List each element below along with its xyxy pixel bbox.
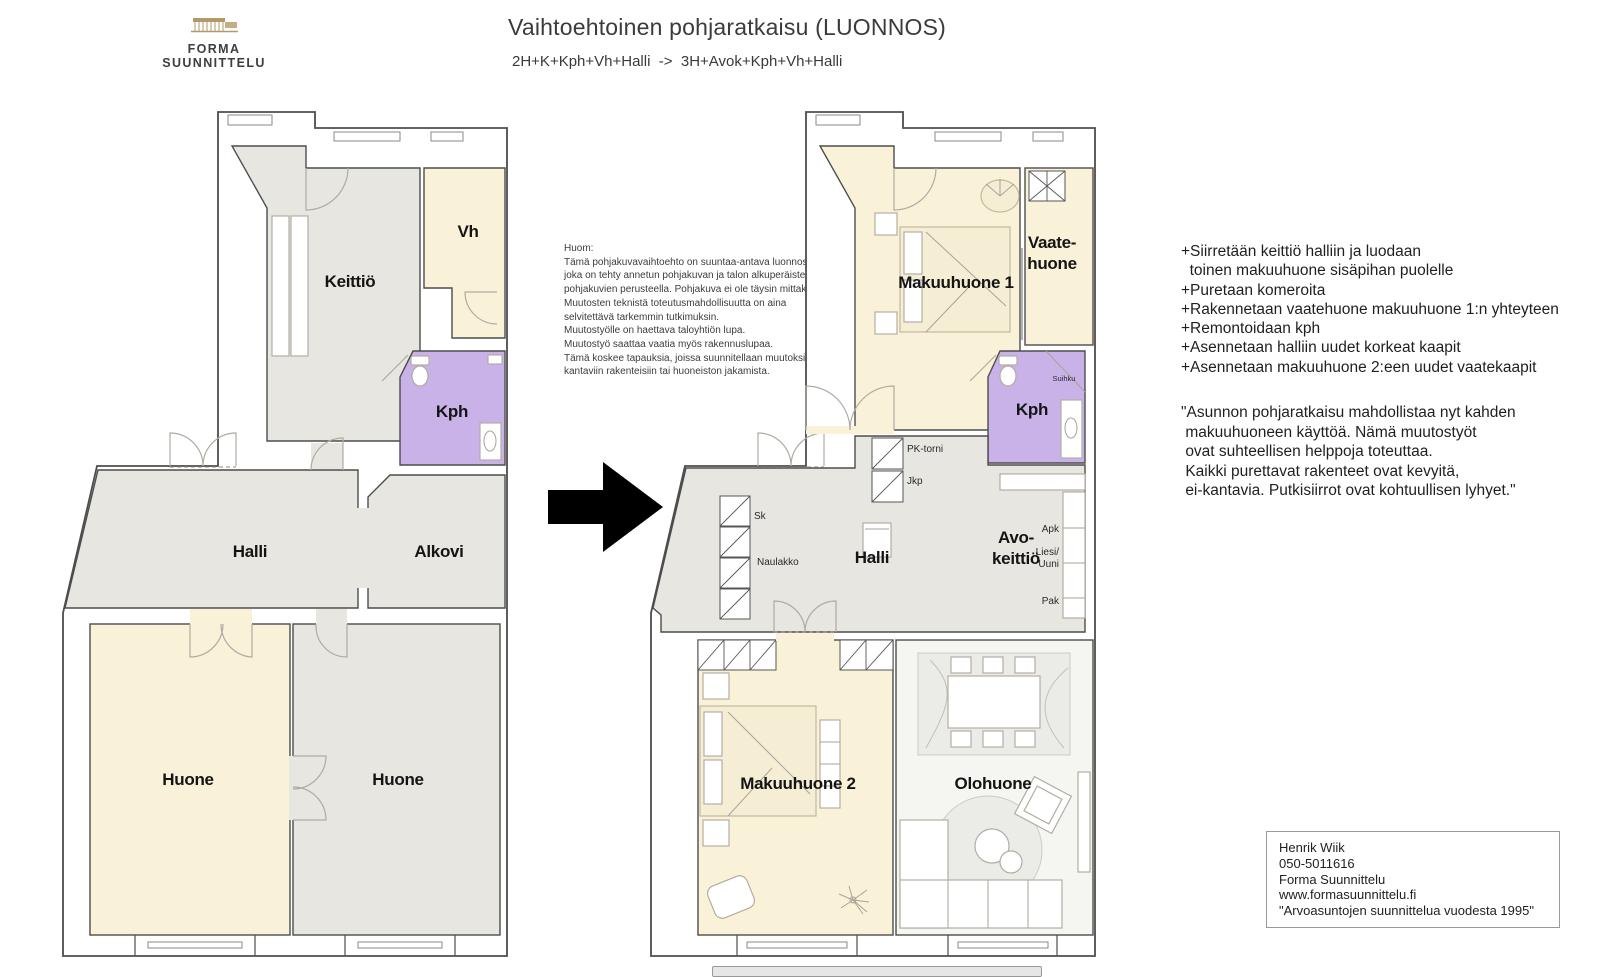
room-label-makuuhuone2: Makuuhuone 2 xyxy=(740,774,855,793)
room-label-olohuone: Olohuone xyxy=(955,774,1032,793)
label-pak: Pak xyxy=(1042,596,1060,607)
change-list: +Siirretään keittiö halliin ja luodaan t… xyxy=(1181,242,1559,377)
room-label-avokeittio-line2: keittiö xyxy=(992,549,1040,568)
room-label-keittio: Keittiö xyxy=(325,272,376,291)
label-naulakko: Naulakko xyxy=(757,557,799,568)
room-label-huone-right: Huone xyxy=(372,770,423,789)
transformation-arrow-icon xyxy=(548,462,663,557)
logo-text: FORMA SUUNNITTELU xyxy=(143,42,285,70)
label-jkp: Jkp xyxy=(907,476,923,487)
floor-plan-before: Keittiö Vh Kph Halli Alkovi Huone Huone xyxy=(60,108,520,963)
logo-building-icon xyxy=(184,14,244,36)
label-sk: Sk xyxy=(754,511,767,522)
company-logo: FORMA SUUNNITTELU xyxy=(143,14,285,70)
room-label-avokeittio-line1: Avo- xyxy=(998,528,1034,547)
room-label-huone-left: Huone xyxy=(162,770,213,789)
floor-plan-after: Makuuhuone 1 Vaate- huone Kph Suihku PK-… xyxy=(648,108,1108,963)
room-label-alkovi: Alkovi xyxy=(414,542,463,561)
balcony-railing xyxy=(712,966,1042,977)
label-liesi: Liesi/ xyxy=(1036,547,1060,558)
room-label-kph: Kph xyxy=(1016,400,1048,419)
label-uuni: Uuni xyxy=(1038,559,1059,570)
room-label-vh: Vh xyxy=(457,222,478,241)
contact-card: Henrik Wiik 050-5011616 Forma Suunnittel… xyxy=(1266,831,1560,928)
room-label-halli: Halli xyxy=(233,542,267,561)
room-label-kph: Kph xyxy=(436,402,468,421)
page-subtitle: 2H+K+Kph+Vh+Halli -> 3H+Avok+Kph+Vh+Hall… xyxy=(512,53,842,70)
page-title: Vaihtoehtoinen pohjaratkaisu (LUONNOS) xyxy=(508,14,946,41)
label-pk-torni: PK-torni xyxy=(907,444,943,455)
room-label-makuuhuone1: Makuuhuone 1 xyxy=(898,273,1013,292)
room-label-halli: Halli xyxy=(855,548,889,567)
room-label-vaatehuone-line1: Vaate- xyxy=(1028,233,1076,252)
label-suihku: Suihku xyxy=(1053,374,1076,383)
designer-quote: "Asunnon pohjaratkaisu mahdollistaa nyt … xyxy=(1181,403,1516,501)
room-halli xyxy=(65,470,358,608)
room-label-vaatehuone-line2: huone xyxy=(1027,254,1077,273)
label-apk: Apk xyxy=(1042,524,1060,535)
